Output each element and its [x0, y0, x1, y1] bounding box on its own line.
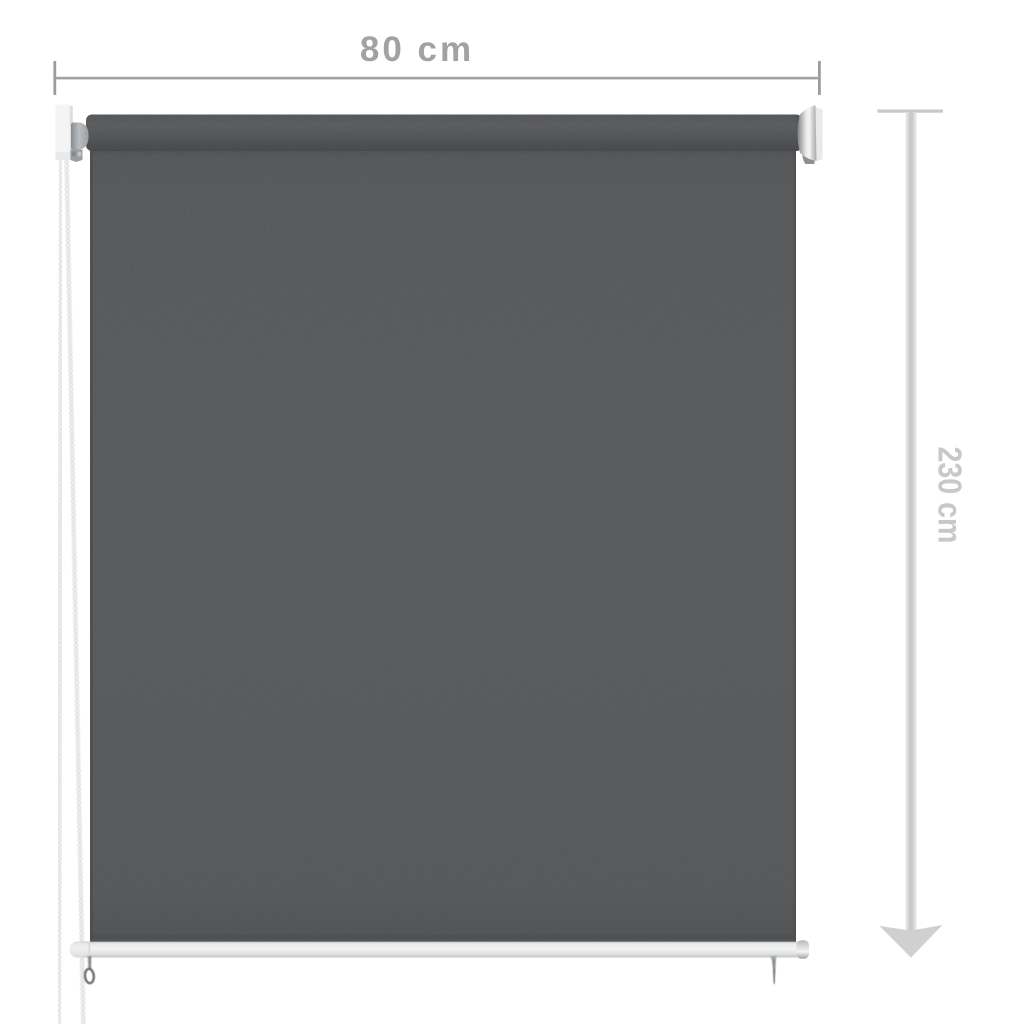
svg-text:80 cm: 80 cm	[360, 30, 474, 69]
svg-text:230 cm: 230 cm	[932, 447, 969, 544]
